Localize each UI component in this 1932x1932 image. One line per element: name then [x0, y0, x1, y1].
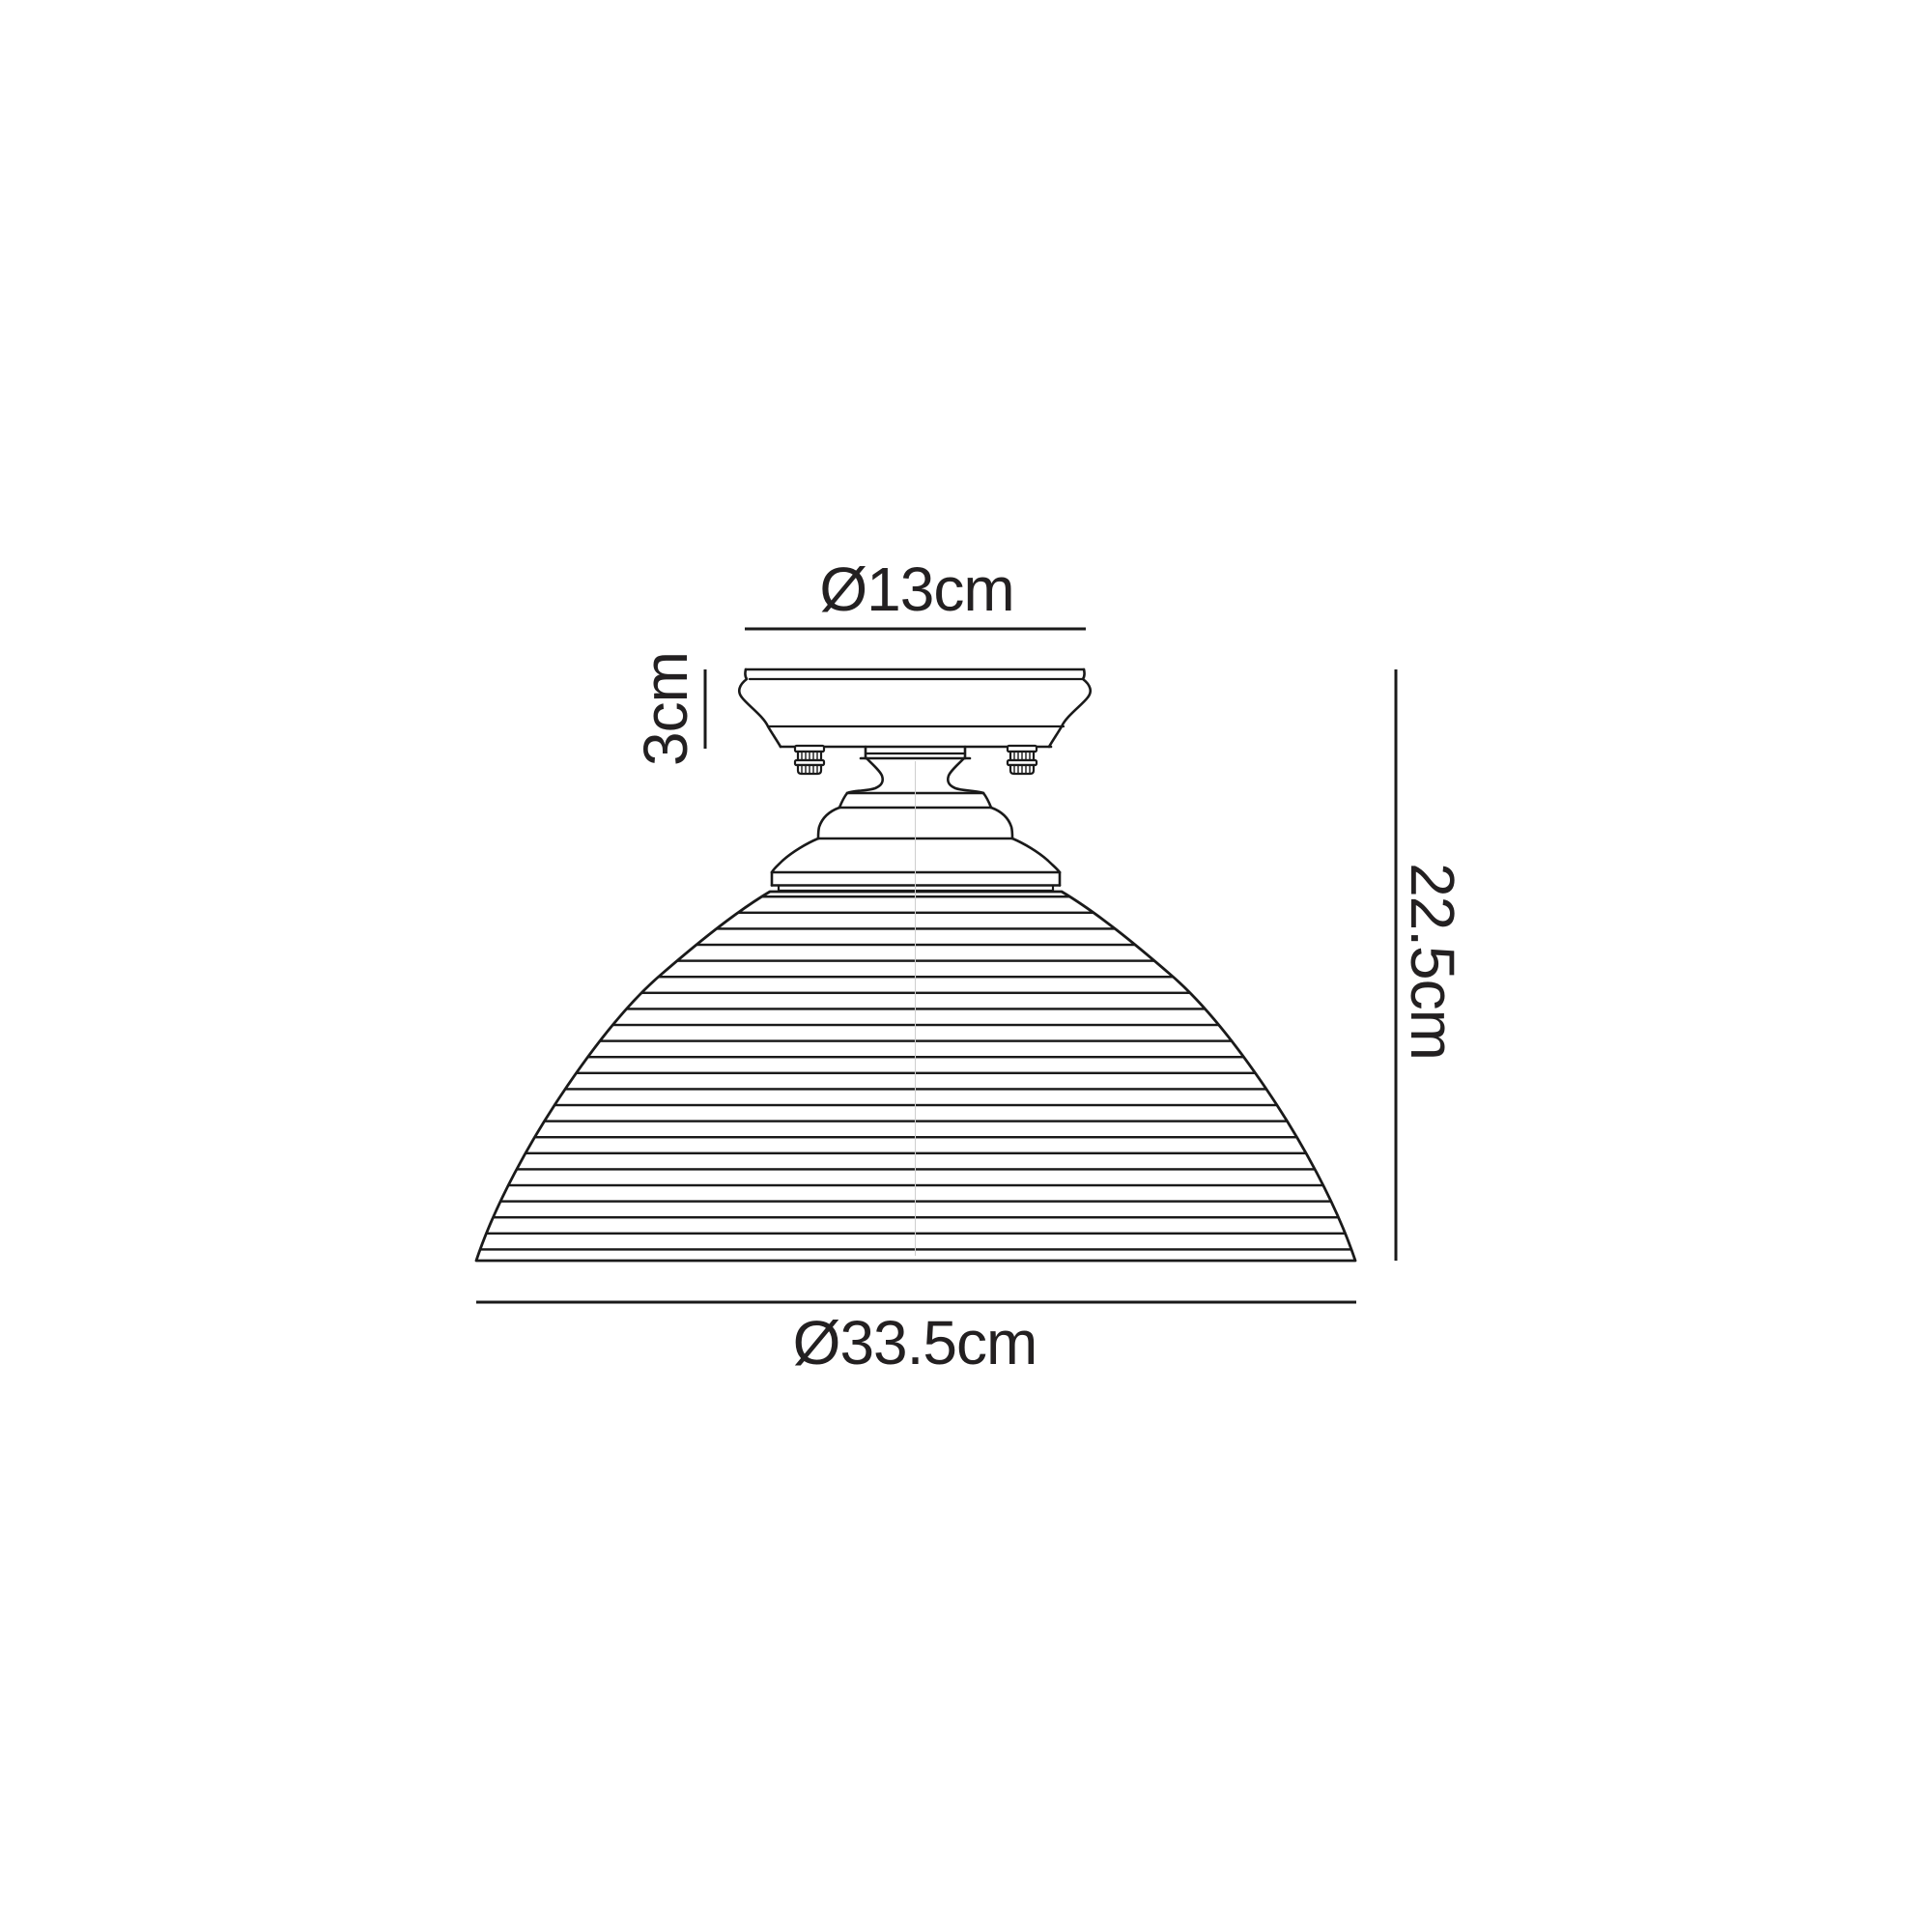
diagram-canvas: Ø13cm 3cm 22.5cm Ø33.5cm [0, 0, 1932, 1932]
ceiling-light-dimension-drawing: Ø13cm 3cm 22.5cm Ø33.5cm [0, 0, 1932, 1932]
mounting-screw-right [1008, 746, 1037, 774]
canopy-diameter-label: Ø13cm [819, 554, 1013, 624]
shade-diameter-label: Ø33.5cm [793, 1308, 1037, 1378]
canopy-height-label: 3cm [631, 652, 700, 766]
mounting-screw-left [795, 746, 824, 774]
total-height-label: 22.5cm [1398, 863, 1467, 1060]
